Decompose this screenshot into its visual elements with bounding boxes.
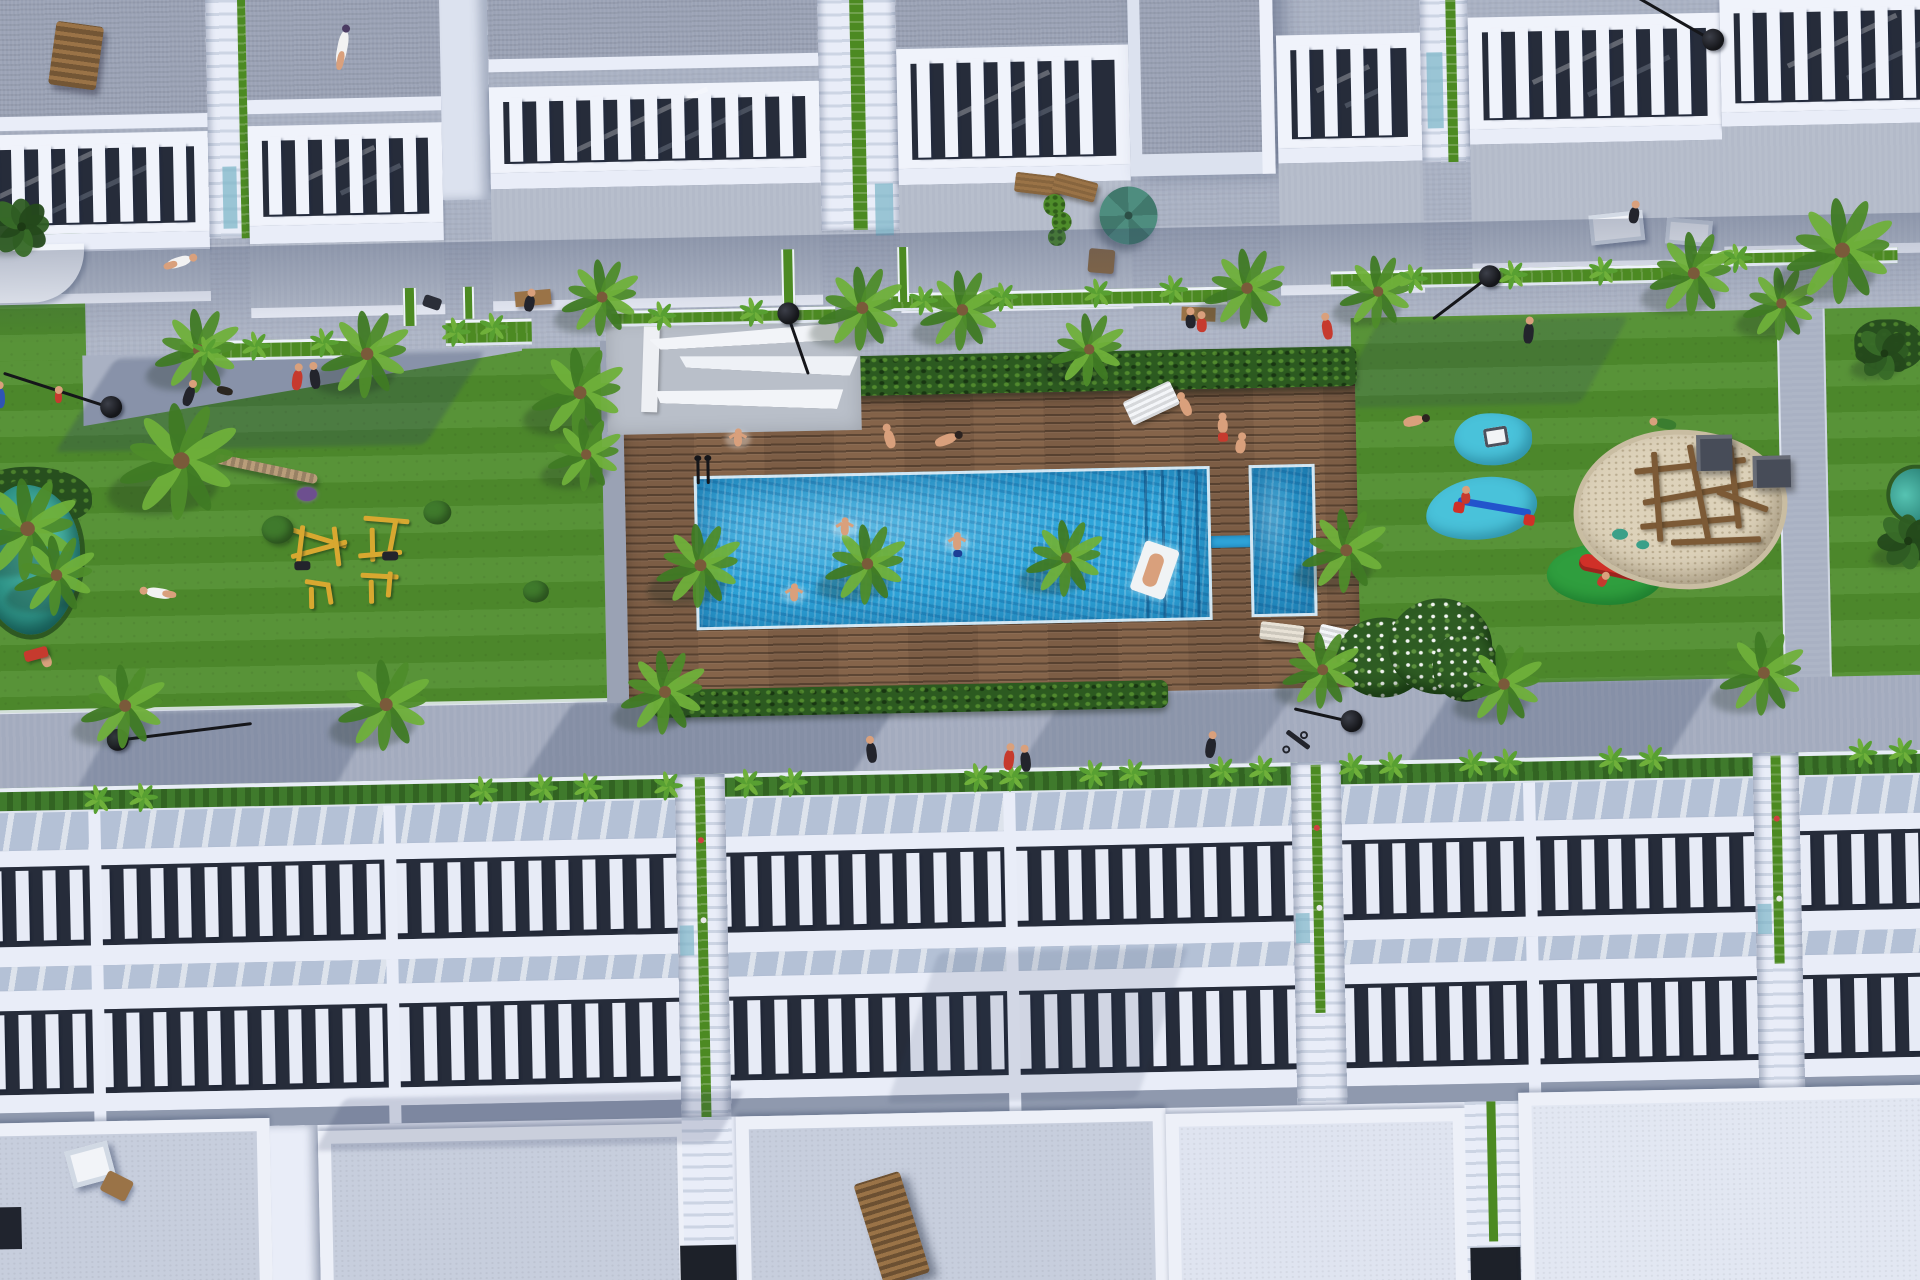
exercise-equipment-bar: [309, 587, 314, 609]
planter-palm-tuft: [129, 783, 158, 812]
person-head: [1238, 432, 1247, 441]
swimmer: [836, 517, 854, 537]
person-head: [1208, 731, 1217, 740]
railing-baluster: [852, 854, 866, 924]
tall-building-roof: [1138, 0, 1263, 154]
railing-baluster: [1041, 850, 1055, 920]
railing-baluster: [349, 135, 364, 213]
railing-baluster: [1257, 846, 1271, 916]
red-shorts: [1218, 433, 1228, 442]
railing-baluster: [916, 59, 931, 157]
railing-baluster: [180, 1011, 194, 1085]
railing-baluster: [801, 999, 815, 1073]
railing-baluster: [1365, 844, 1379, 914]
person-head: [1421, 413, 1431, 423]
railing-baluster: [531, 1004, 545, 1078]
person: [1185, 307, 1195, 328]
railing-baluster: [636, 858, 650, 928]
railing-baluster: [1901, 6, 1916, 98]
palm-tree: [1717, 626, 1811, 720]
railing-baluster: [501, 861, 515, 931]
railing-baluster: [15, 871, 29, 941]
railing-baluster: [234, 1010, 248, 1084]
railing-baluster: [231, 866, 245, 936]
railing-baluster: [555, 860, 569, 930]
railing-baluster: [288, 1009, 302, 1083]
roof-deck-panel: [736, 1108, 1171, 1280]
palm-tree: [618, 645, 712, 739]
railing-baluster: [644, 95, 658, 159]
railing-baluster: [585, 1003, 599, 1077]
roof-deck-panel: [0, 1118, 275, 1280]
railing-baluster: [268, 137, 283, 215]
railing-baluster: [1847, 7, 1862, 99]
railing-baluster: [1851, 834, 1865, 904]
railing-baluster: [322, 135, 337, 213]
railing-baluster: [1766, 8, 1781, 100]
planter-palm-tuft: [1598, 746, 1627, 775]
railing-baluster: [1689, 837, 1703, 907]
railing-baluster: [671, 94, 685, 158]
shadow: [315, 1090, 744, 1151]
railing-baluster: [92, 144, 107, 222]
railing-baluster: [698, 94, 712, 158]
palm-tree: [1459, 639, 1549, 729]
palm-tree: [1299, 503, 1393, 597]
stair-dark-landing: [1470, 1247, 1522, 1280]
railing-baluster: [504, 1005, 518, 1079]
aerial-render-scene: [0, 0, 1920, 1280]
railing-baluster: [609, 859, 623, 929]
dark-tree: [1854, 323, 1915, 384]
railing-baluster: [1368, 988, 1382, 1062]
railing-baluster: [369, 1008, 383, 1082]
railing-baluster: [1827, 978, 1841, 1052]
railing-baluster: [1176, 847, 1190, 917]
dark-opening: [0, 1207, 22, 1251]
railing-baluster: [1122, 849, 1136, 919]
railing-baluster: [882, 997, 896, 1071]
palm-tree: [1024, 515, 1110, 601]
person-head: [0, 381, 4, 389]
railing-baluster: [1719, 981, 1733, 1055]
palm-tree: [559, 254, 645, 340]
railing-baluster: [639, 1002, 653, 1076]
planter-palm-tuft: [1378, 752, 1407, 781]
railing-baluster: [1581, 839, 1595, 909]
planter-palm-tuft: [1458, 749, 1487, 778]
railing-baluster: [447, 862, 461, 932]
planter-palm-tuft: [441, 318, 470, 347]
railing-baluster: [119, 144, 134, 222]
person: [55, 386, 62, 403]
railing-baluster: [312, 865, 326, 935]
railing-baluster: [204, 867, 218, 937]
palm-tree: [1647, 226, 1741, 320]
pool-ladder-knob: [694, 455, 701, 461]
railing-baluster: [1820, 7, 1835, 99]
railing-baluster: [366, 864, 380, 934]
planter-palm-tuft: [242, 332, 271, 361]
railing-baluster: [774, 1000, 788, 1074]
railing-baluster: [1716, 837, 1730, 907]
planter-palm-tuft: [1078, 760, 1107, 789]
railing-baluster: [1824, 834, 1838, 904]
pool-ladder-rail: [706, 457, 710, 484]
railing-baluster: [744, 856, 758, 926]
railing-baluster: [1078, 56, 1093, 154]
planter-palm-tuft: [1588, 257, 1617, 286]
person-body: [1020, 751, 1032, 772]
railing-baluster: [747, 1000, 761, 1074]
railing-baluster: [825, 854, 839, 924]
railing-baluster: [342, 1008, 356, 1082]
railing-baluster: [536, 97, 550, 161]
person-body: [0, 388, 5, 408]
railing-baluster: [1051, 57, 1066, 155]
railing-baluster: [1203, 847, 1217, 917]
roof-deck-chair: [48, 21, 104, 91]
railing-baluster: [1473, 841, 1487, 911]
railing-baluster: [1878, 833, 1892, 903]
dark-tree: [0, 192, 56, 261]
railing-baluster: [1874, 6, 1889, 98]
railing-baluster: [563, 97, 577, 161]
planter-palm-tuft: [779, 768, 808, 797]
planter-palm-tuft: [739, 298, 768, 327]
railing-baluster: [1230, 846, 1244, 916]
railing-baluster: [69, 870, 83, 940]
stair-flower: [1316, 905, 1322, 911]
railing-baluster: [1206, 991, 1220, 1065]
swimmer-head: [954, 532, 961, 539]
person-body: [1523, 323, 1535, 344]
planter-palm-tuft: [1248, 756, 1277, 785]
railing-baluster: [1584, 983, 1598, 1057]
railing-baluster: [612, 1003, 626, 1077]
swimmer-head: [791, 583, 798, 590]
planter-palm-tuft: [989, 283, 1018, 312]
railing-baluster: [1419, 843, 1433, 913]
palm-tree: [1280, 627, 1366, 713]
roof-deck-panel: [1166, 1108, 1471, 1280]
railing-baluster: [423, 1007, 437, 1081]
railing-baluster: [1179, 991, 1193, 1065]
railing-baluster: [943, 59, 958, 157]
person-head: [1006, 743, 1015, 752]
railing-baluster: [258, 866, 272, 936]
railing-baluster: [1662, 838, 1676, 908]
equipment-base: [294, 561, 310, 570]
railing-baluster: [474, 862, 488, 932]
railing-baluster: [1377, 44, 1392, 135]
palm-tree: [116, 395, 247, 526]
climbing-frame-bar: [1671, 536, 1761, 545]
planter-palm-tuft: [909, 286, 938, 315]
railing-baluster: [509, 98, 523, 162]
railing-baluster: [771, 856, 785, 926]
railing-baluster: [1908, 977, 1920, 1051]
palm-tree: [1202, 243, 1292, 333]
palm-tree: [335, 654, 437, 756]
person: [1217, 413, 1227, 433]
palm-tree: [1048, 309, 1130, 391]
planter-palm-tuft: [1638, 745, 1667, 774]
equipment-base: [382, 551, 398, 560]
railing-baluster: [1488, 28, 1503, 118]
railing-baluster: [1068, 850, 1082, 920]
railing-baluster: [1449, 986, 1463, 1060]
swimmer: [729, 428, 747, 448]
railing-baluster: [1095, 849, 1109, 919]
railing-baluster: [1623, 25, 1638, 115]
railing-baluster: [970, 58, 985, 156]
railing-baluster: [315, 1009, 329, 1083]
person-head: [294, 363, 303, 372]
stair-flower: [1774, 816, 1780, 822]
planter-palm-tuft: [84, 785, 113, 814]
planter-palm-tuft: [1338, 753, 1367, 782]
railing-baluster: [1476, 985, 1490, 1059]
stair-glass: [680, 925, 695, 955]
planter-palm-tuft: [1208, 756, 1237, 785]
railing-baluster: [207, 1011, 221, 1085]
planter-palm-tuft: [574, 773, 603, 802]
railing-baluster: [261, 1010, 275, 1084]
railing-baluster: [1739, 9, 1754, 101]
railing-baluster: [1650, 25, 1665, 115]
person-head: [341, 24, 350, 33]
building-roof: [894, 0, 1128, 47]
railing-baluster: [123, 869, 137, 939]
railing-baluster: [1692, 981, 1706, 1055]
shade-block: [1696, 434, 1733, 471]
person-body: [1186, 314, 1196, 328]
stair-glass: [1296, 913, 1311, 943]
palm-tree: [654, 518, 748, 612]
planter-palm-tuft: [1084, 279, 1113, 308]
railing-baluster: [1635, 838, 1649, 908]
railing-baluster: [1395, 987, 1409, 1061]
person: [1461, 486, 1470, 504]
railing-baluster: [1260, 990, 1274, 1064]
railing-baluster: [906, 853, 920, 923]
railing-baluster: [1611, 983, 1625, 1057]
person-head: [1525, 316, 1534, 325]
railing-baluster: [1422, 987, 1436, 1061]
railing-baluster: [153, 1012, 167, 1086]
railing-baluster: [450, 1006, 464, 1080]
railing-baluster: [528, 860, 542, 930]
person-head: [527, 288, 536, 297]
swim-shorts: [953, 550, 962, 557]
railing-baluster: [1542, 27, 1557, 117]
roof-deck-panel: [1518, 1083, 1920, 1280]
palm-tree: [545, 414, 627, 496]
railing-baluster: [403, 134, 418, 212]
planter-palm-tuft: [310, 328, 339, 357]
railing-baluster: [1323, 45, 1338, 136]
railing-baluster: [1503, 985, 1517, 1059]
railing-baluster: [1854, 978, 1868, 1052]
planter-palm-tuft: [1118, 759, 1147, 788]
pool-ladder-rail: [696, 457, 700, 484]
railing-baluster: [1881, 977, 1895, 1051]
person-head: [1631, 200, 1640, 209]
person-head: [1462, 486, 1470, 494]
railing-baluster: [1024, 57, 1039, 155]
person-body: [1197, 318, 1207, 332]
railing-baluster: [855, 998, 869, 1072]
railing-baluster: [582, 859, 596, 929]
planter-palm-tuft: [1499, 261, 1528, 290]
person: [1196, 311, 1206, 332]
railing-baluster: [590, 96, 604, 160]
railing-baluster: [1350, 45, 1365, 136]
railing-baluster: [126, 1013, 140, 1087]
planter-palm-tuft: [1848, 739, 1877, 768]
railing-baluster: [1500, 841, 1514, 911]
planter-palm-tuft: [1159, 275, 1188, 304]
seesaw-end: [1523, 514, 1536, 527]
stair-glass: [1757, 904, 1772, 934]
shade-block: [1752, 455, 1791, 488]
railing-baluster: [779, 92, 793, 156]
person-head: [54, 386, 62, 394]
railing-baluster: [1905, 833, 1919, 903]
railing-baluster: [65, 145, 80, 223]
railing-baluster: [295, 136, 310, 214]
railing-baluster: [558, 1004, 572, 1078]
railing-baluster: [1446, 842, 1460, 912]
railing-baluster: [987, 851, 1001, 921]
railing-baluster: [1638, 982, 1652, 1056]
palm-tree: [1783, 191, 1901, 309]
railing-baluster: [725, 93, 739, 157]
planter-palm-tuft: [647, 302, 676, 331]
railing-baluster: [1233, 990, 1247, 1064]
palm-tree: [815, 261, 909, 355]
railing-baluster: [72, 1014, 86, 1088]
planter-palm-tuft: [192, 337, 221, 366]
palm-tree: [78, 659, 172, 753]
railing-baluster: [1554, 840, 1568, 910]
person: [0, 381, 5, 408]
palm-tree: [12, 530, 102, 620]
railing-baluster: [477, 1006, 491, 1080]
stair-glass: [875, 183, 894, 235]
stair-flower: [1776, 896, 1782, 902]
stair-glass: [1426, 52, 1444, 128]
planter-palm-tuft: [1888, 738, 1917, 767]
planter-palm-tuft: [734, 769, 763, 798]
stair-flower: [1314, 825, 1320, 831]
swimmer: [785, 583, 803, 603]
planter-palm-tuft: [1399, 265, 1428, 294]
planter-palm-tuft: [479, 313, 508, 342]
railing-baluster: [798, 855, 812, 925]
railing-baluster: [173, 142, 188, 220]
railing-baluster: [617, 96, 631, 160]
stair-glass: [222, 166, 237, 228]
person-body: [1218, 419, 1228, 433]
pool-connector: [1211, 535, 1253, 548]
planter-palm-tuft: [963, 763, 992, 792]
railing-baluster: [1557, 984, 1571, 1058]
railing-baluster: [1793, 8, 1808, 100]
exercise-equipment-bar: [369, 580, 374, 604]
railing-baluster: [177, 867, 191, 937]
railing-baluster: [828, 998, 842, 1072]
toy-car: [1483, 425, 1510, 448]
railing-baluster: [933, 852, 947, 922]
railing-baluster: [420, 863, 434, 933]
railing-baluster: [997, 58, 1012, 156]
railing-baluster: [150, 868, 164, 938]
railing-baluster: [1677, 24, 1692, 114]
railing-baluster: [18, 1015, 32, 1089]
planter-palm-tuft: [1723, 244, 1752, 273]
person-body: [1235, 439, 1247, 454]
dark-tree: [1876, 508, 1920, 573]
railing-baluster: [752, 93, 766, 157]
planter-strip-vertical: [463, 287, 475, 319]
railing-baluster: [1596, 26, 1611, 116]
railing-baluster: [1569, 26, 1584, 116]
stair-flower: [698, 837, 704, 843]
railing-baluster: [1149, 848, 1163, 918]
planter-palm-tuft: [654, 772, 683, 801]
stair-alley: [1417, 0, 1470, 163]
climbing-frame-bar: [1716, 489, 1769, 513]
railing-baluster: [1515, 27, 1530, 117]
white-wall: [438, 0, 491, 200]
railing-baluster: [879, 853, 893, 923]
railing-baluster: [1296, 46, 1311, 137]
stair-flower: [701, 917, 707, 923]
railing-baluster: [1392, 843, 1406, 913]
stair-dark-landing: [680, 1245, 738, 1280]
railing-baluster: [1608, 839, 1622, 909]
planter-palm-tuft: [1493, 749, 1522, 778]
railing-baluster: [285, 865, 299, 935]
railing-baluster: [146, 143, 161, 221]
planter-palm-tuft: [529, 774, 558, 803]
resort-site: [0, 0, 1920, 1280]
railing-baluster: [42, 870, 56, 940]
railing-baluster: [376, 134, 391, 212]
railing-baluster: [960, 852, 974, 922]
railing-baluster: [339, 864, 353, 934]
planter-palm-tuft: [469, 776, 498, 805]
railing-baluster: [1665, 982, 1679, 1056]
railing-baluster: [45, 1014, 59, 1088]
roof-wall: [270, 1125, 323, 1280]
